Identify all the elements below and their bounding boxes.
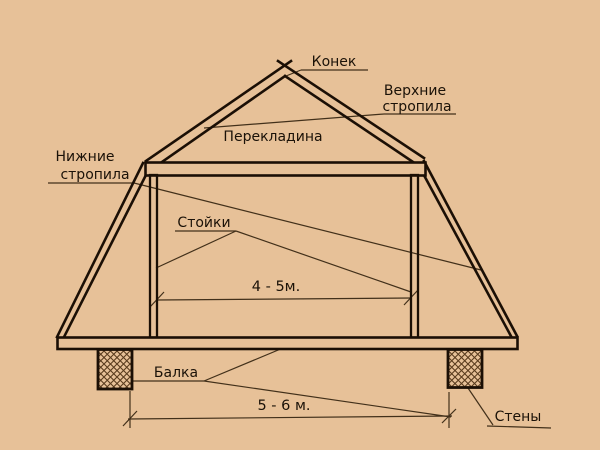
posts-label: Стойки (177, 215, 230, 231)
attic-width-dimension-label: 4 - 5м. (252, 279, 300, 295)
crossbar-beam (146, 163, 426, 176)
beam-label: Балка (154, 365, 198, 381)
upper-rafters-label-line2: стропила (382, 99, 451, 115)
roof-frame-diagram: Конек Верхние стропила Перекладина Нижни… (0, 0, 600, 450)
wall-right (448, 350, 482, 388)
lower-rafters-label-line1: Нижние (55, 149, 114, 165)
upper-rafters-label-line1: Верхние (384, 83, 446, 99)
walls-label: Стены (495, 409, 542, 425)
crossbar-label: Перекладина (223, 129, 322, 145)
lower-rafters-label-line2: стропила (60, 167, 129, 183)
base-beam (58, 338, 518, 350)
wall-left (98, 350, 132, 390)
base-width-dimension-label: 5 - 6 м. (257, 398, 310, 414)
ridge-label: Конек (312, 54, 357, 70)
diagram-canvas: Конек Верхние стропила Перекладина Нижни… (0, 0, 600, 450)
